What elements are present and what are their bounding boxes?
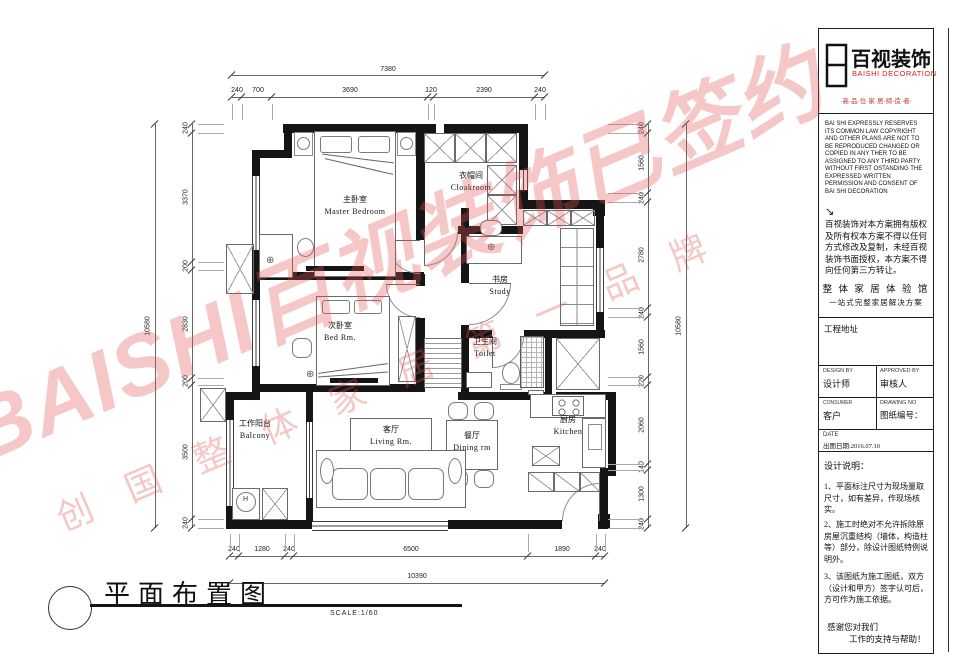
pillow <box>358 136 390 153</box>
door-leaf <box>424 232 425 266</box>
dim-label: 3690 <box>342 87 358 94</box>
window <box>252 300 260 366</box>
tv-cabinet <box>306 266 364 271</box>
dim-label: 2830 <box>183 316 190 332</box>
utility-platform <box>556 338 600 390</box>
shaft-box <box>226 244 254 294</box>
wardrobe <box>424 133 455 163</box>
room-en: Study <box>460 286 540 298</box>
dim-ext <box>545 104 546 120</box>
wall <box>608 392 616 474</box>
dim-ext <box>239 534 240 552</box>
scale-label: SCALE:1/60 <box>330 610 379 617</box>
wall <box>444 124 527 133</box>
dim-label: 1560 <box>639 339 646 355</box>
room-label-cloakroom: 衣帽间 Cloakroom <box>421 170 521 194</box>
door-arc-hall <box>424 232 458 266</box>
dim-label: 6500 <box>403 546 419 553</box>
consumer-cn: 客户 <box>823 409 841 422</box>
dim-ext <box>230 534 231 552</box>
dim-ext <box>198 528 224 529</box>
dim-line-left-chain <box>192 124 193 528</box>
divider <box>819 113 933 114</box>
divider <box>819 397 933 398</box>
dim-ext <box>608 385 644 386</box>
dim-label: 240 <box>183 122 190 134</box>
divider <box>819 429 933 430</box>
center-mark-icon: ⊕ <box>487 243 495 253</box>
dim-line-top-total <box>232 75 545 76</box>
dim-ext <box>608 464 644 465</box>
drawing-no-cn: 图纸编号： <box>880 409 923 421</box>
dim-ext <box>605 534 606 552</box>
dim-ext <box>285 534 286 552</box>
dresser <box>259 234 293 278</box>
dim-label: 10580 <box>145 316 152 335</box>
room-cn: 次卧室 <box>295 320 385 332</box>
english-disclaimer: BAI SHI EXPRESSLY RESERVES ITS COMMON LA… <box>825 121 927 196</box>
balcony-slider <box>306 422 313 498</box>
dim-ext <box>535 104 536 120</box>
room-en: Dining rm <box>442 442 502 454</box>
dim-ext <box>608 470 644 471</box>
tv-cabinet <box>330 378 378 383</box>
company-tagline: ·高·品·位·家·居·缔·造·者· <box>819 95 933 105</box>
divider <box>819 451 933 452</box>
room-cn: 客厅 <box>351 424 431 436</box>
room-en: Living Rm. <box>351 436 431 448</box>
room-cn: 书房 <box>460 274 540 286</box>
room-cn: 餐厅 <box>442 430 502 442</box>
room-cn: 主卧室 <box>295 194 415 206</box>
room-en: Bed Rm. <box>295 332 385 344</box>
room-cn: 工作阳台 <box>220 418 290 430</box>
washer-label: H <box>243 496 248 503</box>
dim-ext <box>198 270 224 271</box>
dim-ext <box>232 104 233 120</box>
bookshelf <box>560 228 594 326</box>
center-mark-icon: ⊕ <box>306 370 314 380</box>
wardrobe <box>455 133 486 163</box>
laundry-sink <box>262 488 288 520</box>
wall <box>306 498 313 521</box>
sofa-armrest <box>320 458 334 484</box>
wall <box>596 208 604 248</box>
title-block: 百视装饰 BAISHI DECORATION ·高·品·位·家·居·缔·造·者·… <box>818 28 934 654</box>
cabinet <box>547 210 571 226</box>
room-en: Cloakroom <box>421 182 521 194</box>
entry-cabinet <box>554 472 580 492</box>
bay-window <box>312 521 448 531</box>
room-en: Master Bedroom <box>295 206 415 218</box>
design-by-en: DESIGN BY <box>823 368 853 374</box>
fridge <box>532 446 560 466</box>
dim-ext <box>608 202 644 203</box>
wardrobe <box>486 133 517 163</box>
dim-line-left-total <box>155 124 156 528</box>
wall <box>226 520 312 529</box>
slogan-primary: 整 体 家 居 体 验 馆 <box>819 281 933 295</box>
room-cn: 卫生间 <box>455 336 515 348</box>
door-arc-bedroom2 <box>386 284 420 318</box>
wall <box>226 392 234 420</box>
design-by-cn: 设计师 <box>823 377 850 390</box>
dim-line-right-total <box>686 124 687 528</box>
dim-line-bottom-chain <box>230 556 605 557</box>
approved-by-en: APPROVED BY <box>880 368 919 374</box>
room-label-study: 书房 Study <box>460 274 540 298</box>
logo-subtext: BAISHI DECORATION <box>852 69 937 78</box>
slogan-secondary: 一站式完整家居解决方案 <box>819 297 933 308</box>
room-en: Kitchen <box>538 426 598 438</box>
center-mark-icon: ⊕ <box>266 256 274 266</box>
dim-ext <box>528 534 529 552</box>
date-cn: 出图日期:2016.07.10 <box>823 440 880 450</box>
pillow <box>320 136 352 153</box>
dim-ext <box>608 519 644 520</box>
entry-cabinet <box>580 472 600 492</box>
dim-ext <box>198 124 224 125</box>
room-label-kitchen: 厨房 Kitchen <box>538 414 598 438</box>
dim-ext <box>198 385 224 386</box>
dim-label: 3500 <box>183 444 190 460</box>
approved-by-cn: 审核人 <box>880 377 907 390</box>
dim-label: 7380 <box>380 66 396 73</box>
wall <box>306 392 313 422</box>
room-label-living: 客厅 Living Rm. <box>351 424 431 448</box>
dim-ext <box>272 104 273 120</box>
lamp <box>297 137 310 150</box>
dim-ext <box>608 377 644 378</box>
dim-ext <box>198 378 224 379</box>
entry-cabinet <box>528 472 554 492</box>
drawing-title: 平面布置图 <box>104 574 274 611</box>
wall <box>448 520 562 529</box>
shaft-box <box>200 388 226 422</box>
dim-ext <box>608 317 644 318</box>
dim-label: 1300 <box>639 486 646 502</box>
date-en: DATE <box>823 432 839 438</box>
chinese-disclaimer: 百视装饰对本方案拥有版权及所有权本方案不得以任何方式修改及复制，未经百视装饰书面… <box>825 219 928 277</box>
dim-ext <box>608 528 644 529</box>
stool <box>297 238 314 257</box>
dim-ext <box>596 534 597 552</box>
dim-label: 1280 <box>254 546 270 553</box>
bath-sink <box>466 372 492 388</box>
thanks-line-1: 感谢您对我们 <box>827 621 878 633</box>
design-note-2: 2、施工时绝对不允许拆除原房屋沉重结构（墙体，构造柱等）部分，除设计图纸特例说明… <box>824 519 928 565</box>
window <box>596 248 604 312</box>
design-notes-title: 设计说明： <box>824 459 869 472</box>
cabinet <box>523 210 547 226</box>
dining-chair <box>474 402 494 420</box>
divider <box>819 317 933 318</box>
wall <box>600 474 608 529</box>
design-note-1: 1、平面标注尺寸为现场量取尺寸，如有差异，作现场核实。 <box>824 481 928 516</box>
dim-ext <box>608 308 644 309</box>
room-en: Balcony <box>220 430 290 442</box>
dim-label: 1890 <box>554 546 570 553</box>
sheet-border-right <box>948 28 949 652</box>
dining-chair <box>474 470 494 488</box>
cabinet <box>571 210 595 226</box>
room-label-toilet: 卫生间 Toilet <box>455 336 515 360</box>
dim-label: 700 <box>252 87 264 94</box>
room-label-dining: 餐厅 Dining rm <box>442 430 502 454</box>
dim-ext <box>198 133 224 134</box>
room-cn: 衣帽间 <box>421 170 521 182</box>
arrow-icon: ↘ <box>825 205 834 218</box>
room-label-balcony: 工作阳台 Balcony <box>220 418 290 442</box>
pillow <box>322 300 350 314</box>
dim-ext <box>608 124 644 125</box>
shower <box>520 336 544 388</box>
door-leaf <box>386 284 420 285</box>
drawing-no-en: DRAWING NO <box>880 400 916 406</box>
wall <box>519 124 528 170</box>
dim-label: 200 <box>183 260 190 272</box>
baishi-logo-icon <box>825 43 849 89</box>
dim-label: 2390 <box>476 87 492 94</box>
project-address-label: 工程地址 <box>824 323 858 335</box>
logo-text: 百视装饰 <box>851 43 931 72</box>
dim-ext <box>608 133 644 134</box>
room-en: Toilet <box>455 348 515 360</box>
dim-ext <box>198 262 224 263</box>
dim-ext <box>428 104 429 120</box>
design-note-3: 3、该图纸为施工图纸，双方（设计和甲方）签字认可后，方可作为施工依据。 <box>824 571 928 606</box>
stove <box>552 396 584 416</box>
dim-label: 240 <box>183 517 190 529</box>
dim-label: 2060 <box>639 417 646 433</box>
room-label-bedroom2: 次卧室 Bed Rm. <box>295 320 385 344</box>
room-label-master: 主卧室 Master Bedroom <box>295 194 415 218</box>
room-cn: 厨房 <box>538 414 598 426</box>
sofa-cushion <box>408 468 444 500</box>
lamp <box>400 137 413 150</box>
drawing-sheet: ⊕ ⊕ ⊕ <box>0 0 960 661</box>
dim-line-top-chain <box>232 97 545 98</box>
sofa-cushion <box>370 468 406 500</box>
dim-ext <box>434 104 435 120</box>
wall <box>545 338 552 392</box>
dim-label: 10580 <box>676 316 683 335</box>
desk-chair <box>480 220 502 236</box>
dim-label: 2780 <box>639 247 646 263</box>
thanks-line-2: 工作的支持与帮助！ <box>849 633 926 645</box>
dim-ext <box>294 534 295 552</box>
wall <box>252 150 292 158</box>
wardrobe-tall <box>398 316 416 382</box>
sofa-cushion <box>332 468 368 500</box>
dining-chair <box>448 402 468 420</box>
consumer-en: CONSUMER <box>823 400 852 406</box>
wall <box>252 158 260 176</box>
dim-ext <box>242 104 243 120</box>
sofa-armrest <box>448 458 462 484</box>
dim-ext <box>608 193 644 194</box>
toilet-bowl <box>502 362 520 384</box>
dim-line-bottom-total <box>230 583 605 584</box>
toilet-tank <box>500 384 522 390</box>
title-bubble <box>48 586 92 630</box>
pillow <box>354 300 382 314</box>
dim-ext <box>198 519 224 520</box>
dim-label: 3370 <box>183 189 190 205</box>
dim-label: 1560 <box>639 155 646 171</box>
dim-label: 10390 <box>407 573 426 580</box>
